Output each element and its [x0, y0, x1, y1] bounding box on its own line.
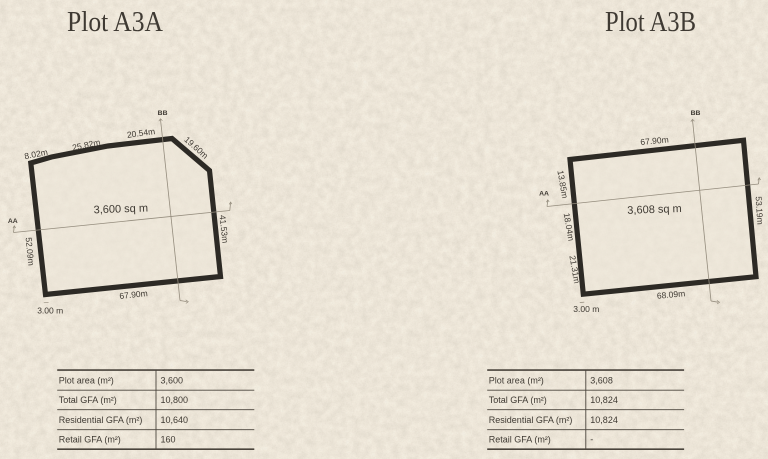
svg-text:3,608: 3,608 [590, 375, 613, 385]
svg-text:Residential GFA (m²): Residential GFA (m²) [489, 415, 573, 425]
svg-text:3,600 sq m: 3,600 sq m [93, 202, 148, 216]
svg-text:AA: AA [539, 191, 549, 198]
svg-text:3.00 m: 3.00 m [37, 305, 63, 315]
svg-text:Plot area (m²): Plot area (m²) [489, 375, 544, 385]
svg-text:BB: BB [691, 110, 701, 117]
svg-text:10,640: 10,640 [161, 415, 189, 425]
svg-text:BB: BB [158, 110, 168, 117]
svg-text:3,608 sq m: 3,608 sq m [627, 203, 682, 217]
svg-text:-: - [590, 435, 593, 445]
svg-text:3,600: 3,600 [161, 375, 184, 385]
svg-text:Total GFA (m²): Total GFA (m²) [59, 395, 117, 405]
svg-text:Residential GFA (m²): Residential GFA (m²) [59, 415, 143, 425]
svg-text:Total GFA (m²): Total GFA (m²) [489, 395, 547, 405]
svg-text:10,824: 10,824 [590, 415, 618, 425]
svg-text:AA: AA [8, 218, 18, 225]
svg-text:53.19m: 53.19m [754, 196, 766, 225]
svg-text:Retail GFA (m²): Retail GFA (m²) [489, 435, 551, 445]
svg-text:160: 160 [161, 435, 176, 445]
svg-text:Retail GFA (m²): Retail GFA (m²) [59, 435, 121, 445]
svg-text:10,824: 10,824 [590, 395, 618, 405]
svg-text:Plot A3A: Plot A3A [67, 6, 163, 38]
svg-text:10,800: 10,800 [161, 395, 189, 405]
svg-text:3.00 m: 3.00 m [573, 304, 599, 314]
svg-text:Plot area (m²): Plot area (m²) [59, 375, 114, 385]
svg-text:Plot A3B: Plot A3B [605, 6, 696, 38]
